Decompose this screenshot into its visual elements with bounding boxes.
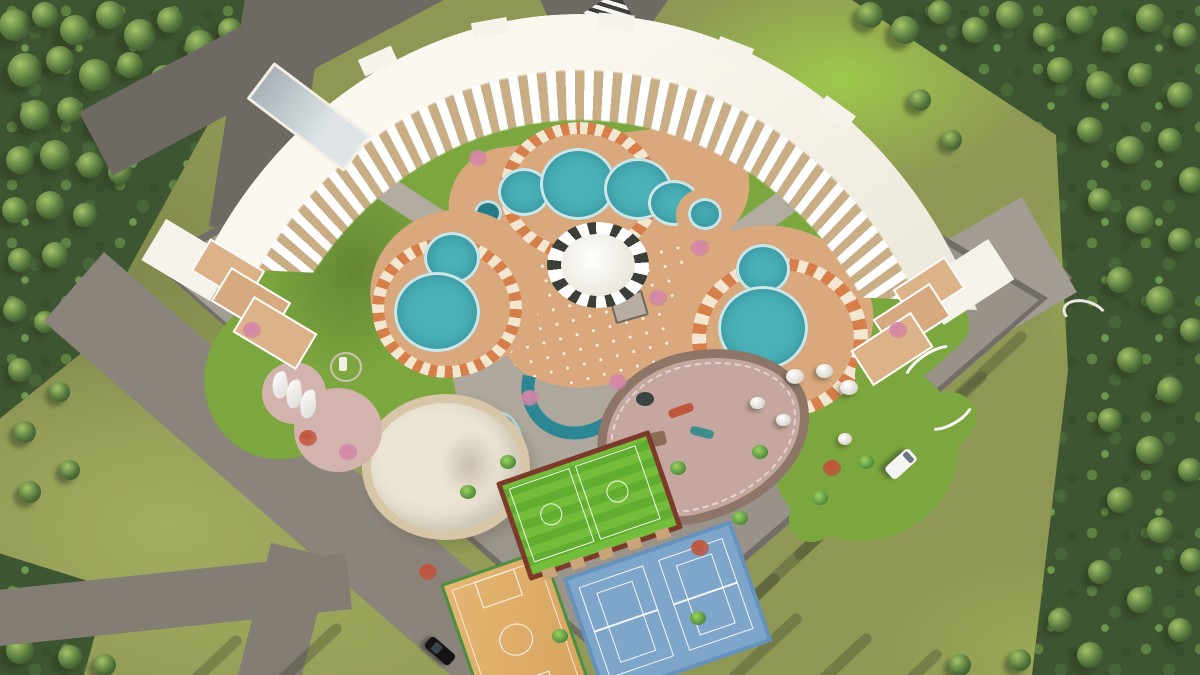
- palm-tree: [732, 511, 748, 525]
- palm-tree: [670, 461, 686, 475]
- palm-tree: [460, 485, 476, 499]
- palm-tree: [812, 491, 828, 505]
- white-van-windshield: [902, 451, 914, 464]
- palm-tree: [690, 611, 706, 625]
- palm-tree: [858, 455, 874, 469]
- palm-tree: [500, 455, 516, 469]
- palm-tree: [752, 445, 768, 459]
- black-car-windshield: [430, 641, 443, 654]
- palm-clusters: [0, 0, 1200, 675]
- resort-aerial-render: [0, 0, 1200, 675]
- palm-tree: [552, 629, 568, 643]
